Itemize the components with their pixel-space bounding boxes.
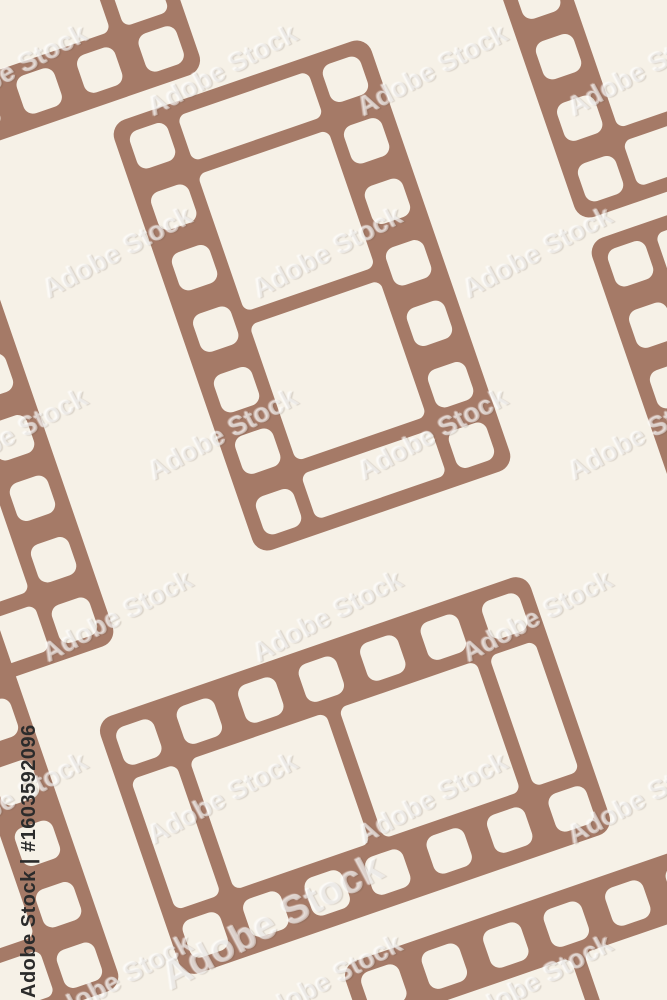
stock-id-label: Adobe Stock | #1603592096 xyxy=(18,724,41,998)
pattern-canvas: Adobe StockAdobe StockAdobe StockAdobe S… xyxy=(0,0,667,1000)
watermark-text: Adobe Stock xyxy=(0,382,93,487)
watermark-text: Adobe Stock xyxy=(0,18,93,123)
watermark-text: Adobe Stock xyxy=(352,746,512,851)
watermark-text: Adobe Stock xyxy=(0,746,93,851)
watermark-text: Adobe Stock xyxy=(37,200,197,305)
watermark-text: Adobe Stock xyxy=(457,928,617,1000)
watermark-text: Adobe Stock xyxy=(142,18,302,123)
watermark-layer: Adobe StockAdobe StockAdobe StockAdobe S… xyxy=(0,0,667,1000)
watermark-text: Adobe Stock xyxy=(352,18,512,123)
watermark-text: Adobe Stock xyxy=(457,200,617,305)
watermark-text: Adobe Stock xyxy=(142,746,302,851)
watermark-text: Adobe Stock xyxy=(37,564,197,669)
watermark-text: Adobe Stock xyxy=(247,564,407,669)
watermark-text: Adobe Stock xyxy=(562,18,667,123)
watermark-text: Adobe Stock xyxy=(37,928,197,1000)
watermark-text: Adobe Stock xyxy=(247,928,407,1000)
watermark-text: Adobe Stock xyxy=(154,845,391,1000)
watermark-text: Adobe Stock xyxy=(562,382,667,487)
watermark-text: Adobe Stock xyxy=(247,200,407,305)
watermark-text: Adobe Stock xyxy=(562,746,667,851)
watermark-text: Adobe Stock xyxy=(142,382,302,487)
watermark-text: Adobe Stock xyxy=(352,382,512,487)
watermark-text: Adobe Stock xyxy=(457,564,617,669)
